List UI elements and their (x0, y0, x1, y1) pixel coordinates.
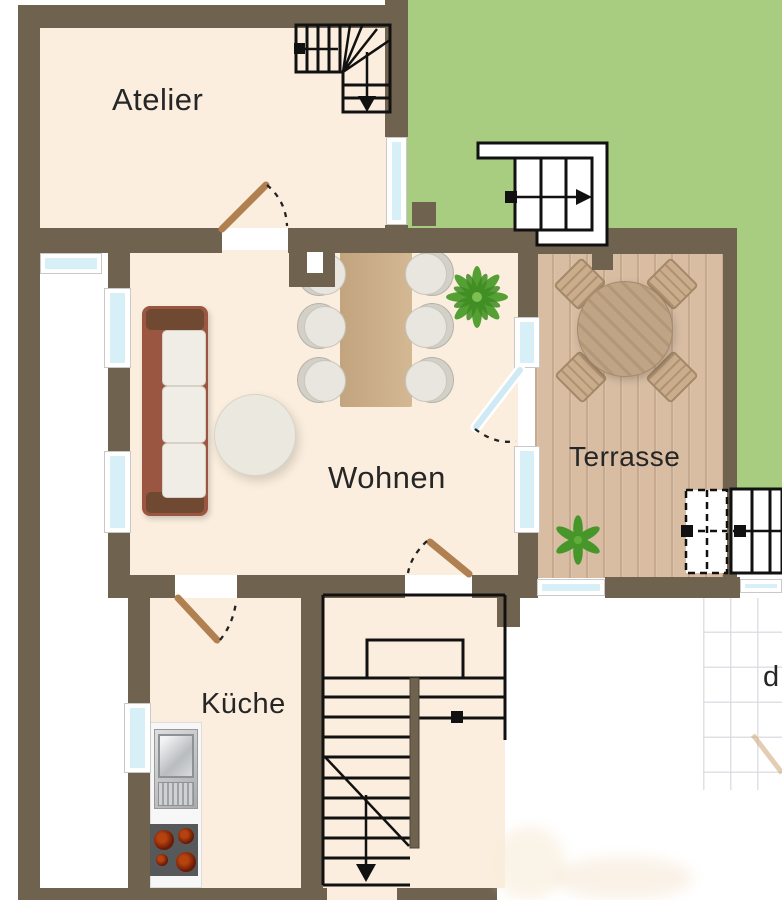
stair-start-marker (451, 711, 463, 723)
right-staircase-hidden (681, 490, 727, 573)
door-swing-atelier (222, 185, 287, 229)
plant-icon (446, 266, 508, 328)
room-label-kueche: Küche (201, 688, 286, 721)
stair-down-arrow (358, 96, 376, 112)
faded-door-remnant (753, 735, 782, 773)
door-swing-terrace-glass (475, 370, 520, 442)
stair-start-marker (505, 191, 517, 203)
room-label-atelier: Atelier (112, 82, 203, 118)
stair-divider-wall (410, 678, 419, 848)
garden-staircase (478, 143, 607, 245)
main-staircase (323, 595, 505, 885)
door-swing-kitchen (178, 598, 236, 640)
room-label-terrasse: Terrasse (569, 441, 680, 473)
door-swing-hall (408, 541, 469, 574)
plant-icon (554, 515, 602, 565)
stair-start-marker (294, 43, 305, 54)
right-staircase (731, 489, 782, 573)
stair-down-arrow (356, 864, 376, 882)
floor-plan: Atelier Wohnen Terrasse Küche d (0, 0, 782, 900)
stair-start-marker (681, 525, 693, 537)
partial-text-right-edge: d (763, 661, 780, 694)
stair-start-marker (734, 525, 746, 537)
atelier-staircase (294, 25, 390, 112)
room-label-wohnen: Wohnen (328, 460, 446, 496)
